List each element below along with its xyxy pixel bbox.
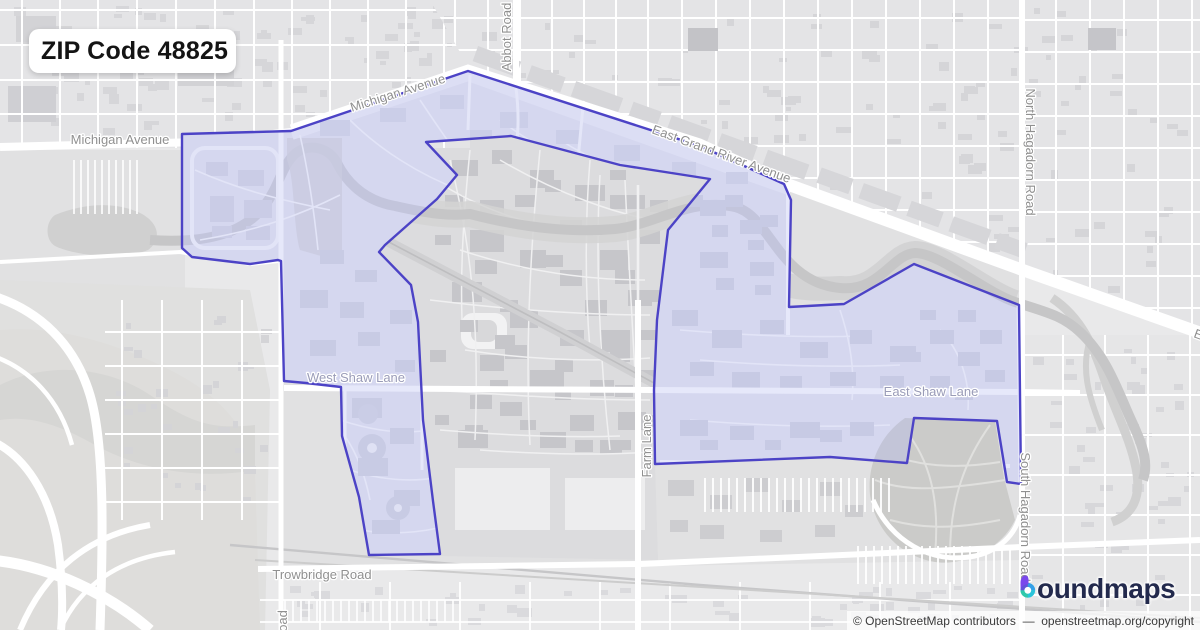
svg-text:Abbot Road: Abbot Road bbox=[499, 3, 514, 72]
svg-text:Trowbridge Road: Trowbridge Road bbox=[272, 567, 371, 582]
svg-text:South Hagadorn Road: South Hagadorn Road bbox=[1018, 452, 1033, 581]
svg-text:Harrison Road: Harrison Road bbox=[275, 610, 290, 630]
svg-text:Farm Lane: Farm Lane bbox=[639, 415, 654, 478]
svg-text:Michigan Avenue: Michigan Avenue bbox=[71, 132, 170, 147]
svg-text:East Shaw Lane: East Shaw Lane bbox=[884, 384, 979, 399]
svg-text:North Hagadorn Road: North Hagadorn Road bbox=[1023, 88, 1038, 215]
svg-text:West Shaw Lane: West Shaw Lane bbox=[307, 370, 405, 385]
